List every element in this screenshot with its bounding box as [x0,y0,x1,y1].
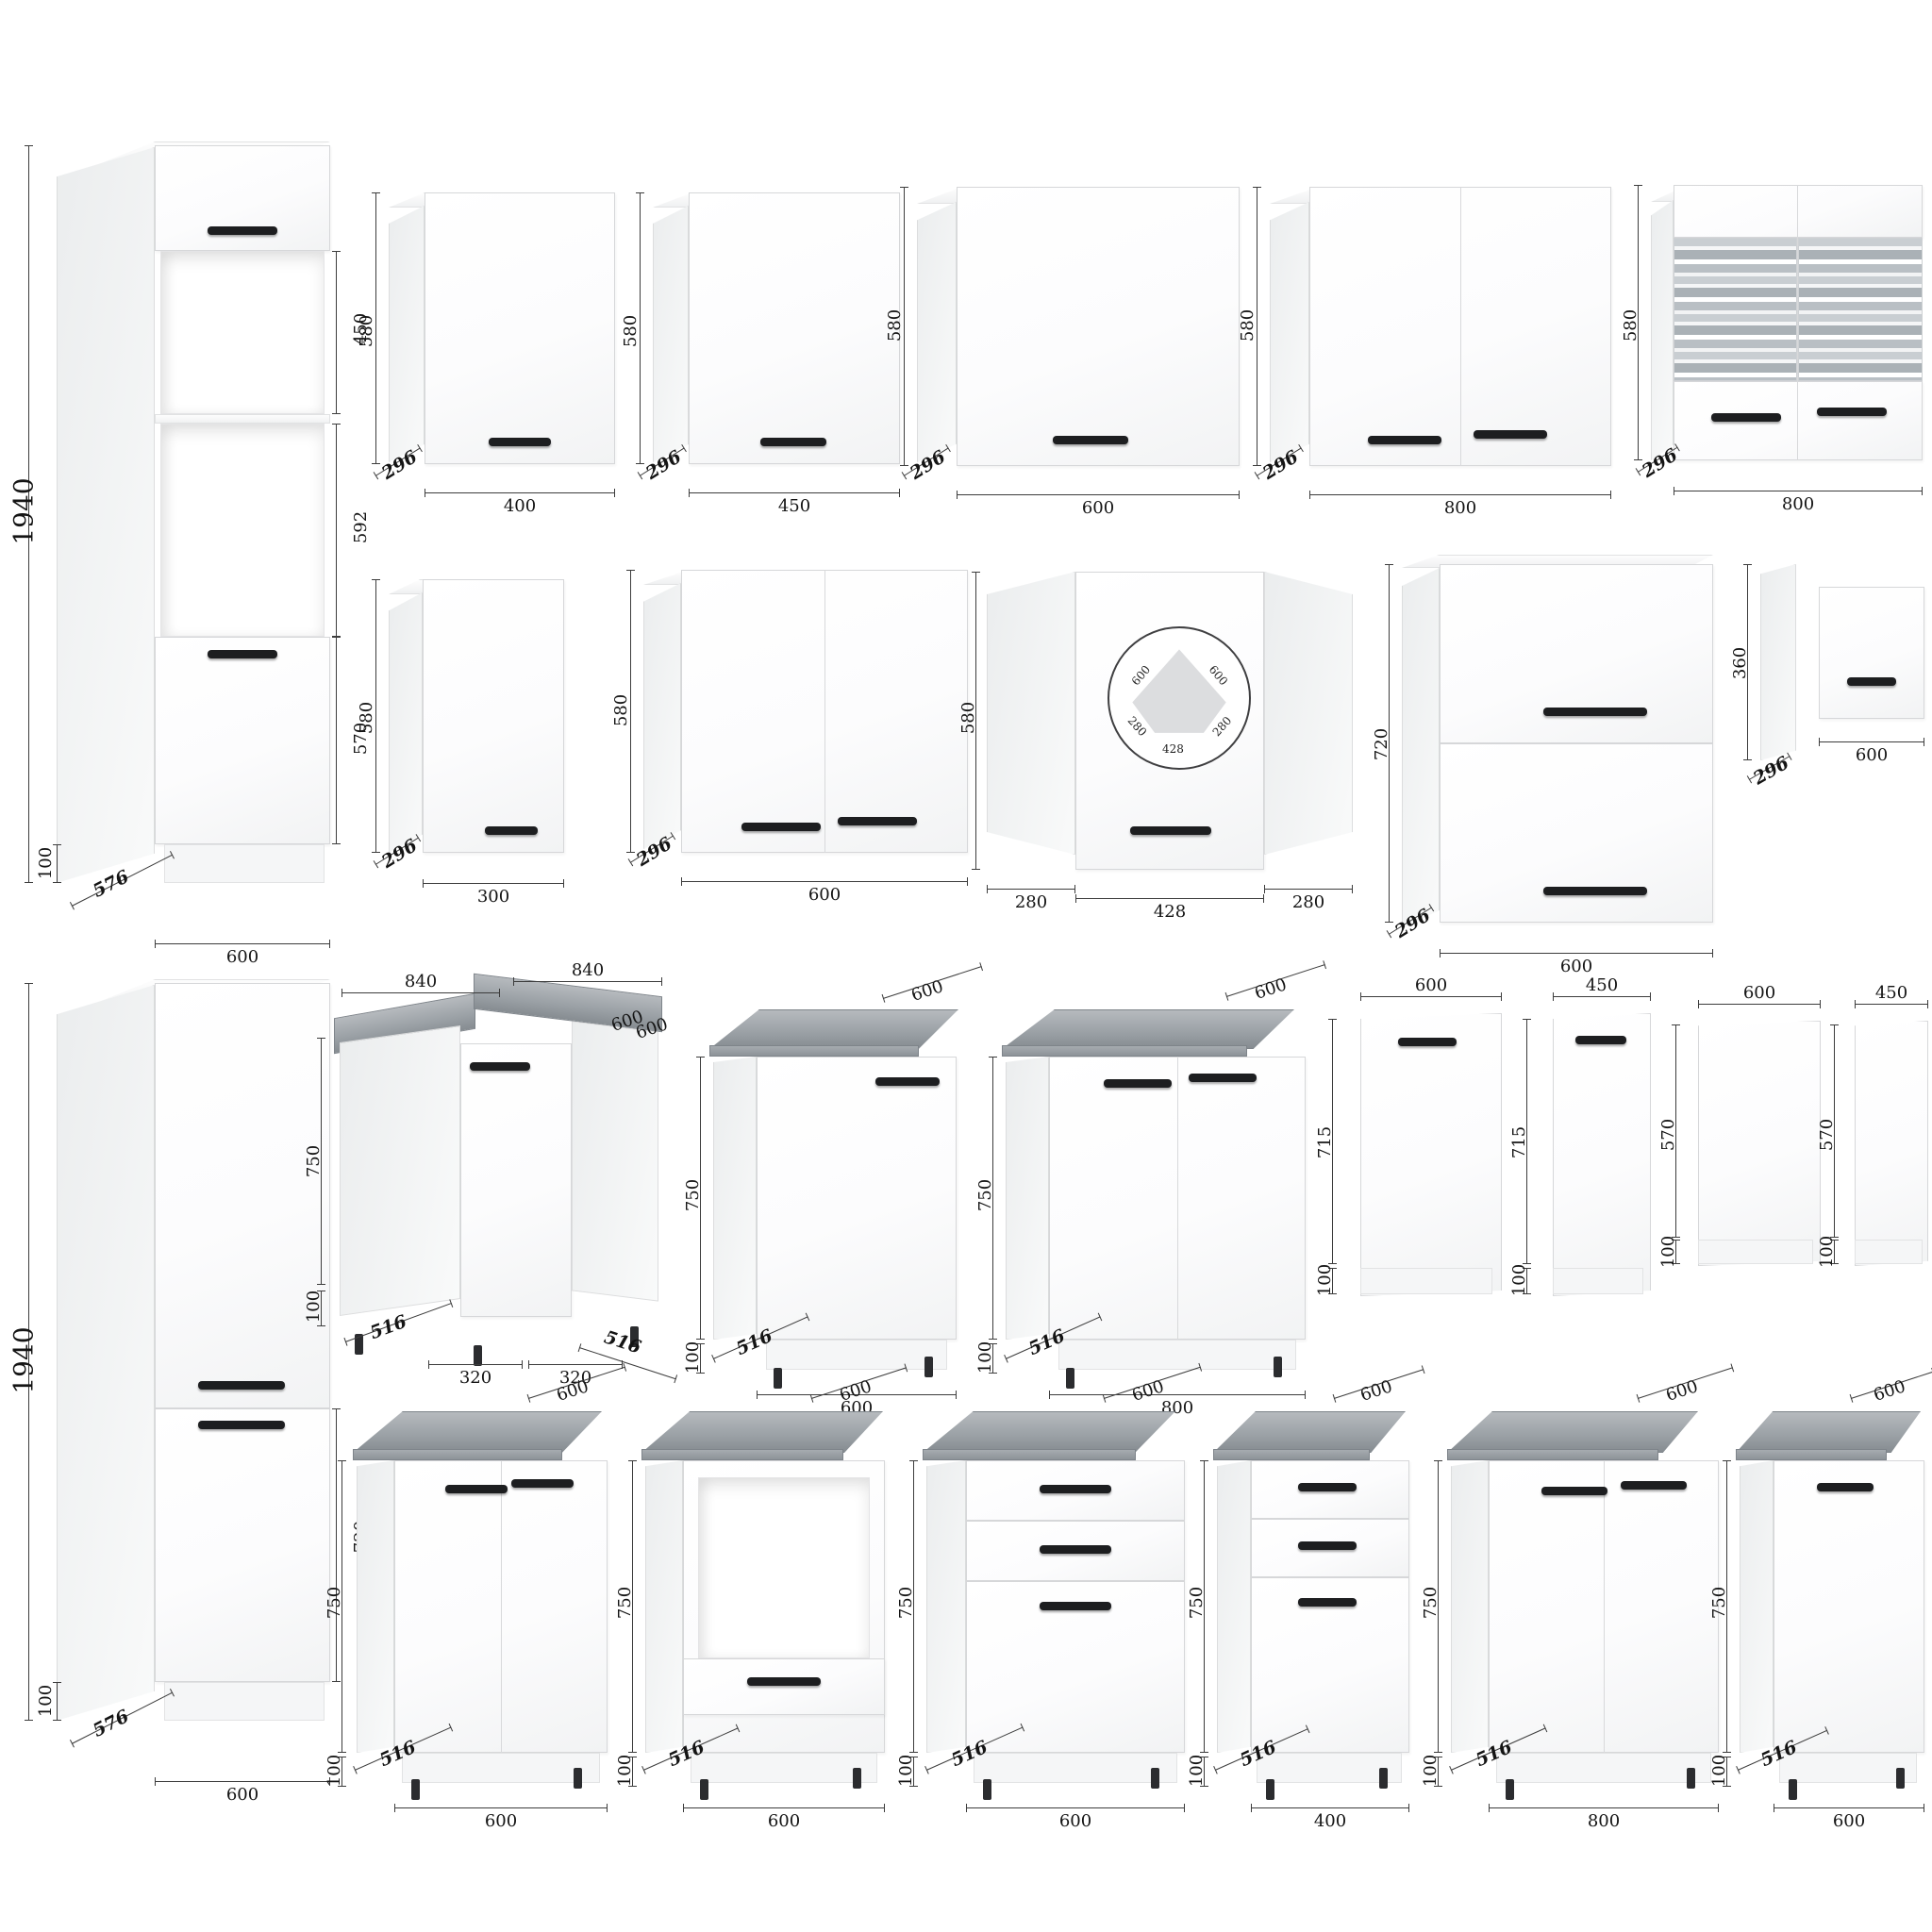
dim-label-side: 280 [987,894,1075,911]
dim-label-height: 750 [685,1179,702,1211]
cabinet-side-face [1402,568,1440,928]
oven-niche-upper [160,251,325,414]
dim-label-height: 750 [326,1587,343,1619]
dim-line [681,881,968,882]
dim-label-width: 600 [1360,977,1502,994]
cabinet-side-face [389,592,423,853]
dim-label-plinth: 100 [685,1341,702,1374]
dim-label-height: 580 [887,309,904,341]
door-handle [1621,1481,1687,1490]
dim-label-height: 750 [1189,1587,1206,1619]
drawer-handle [747,1677,821,1686]
plinth-step [1855,1240,1923,1264]
cabinet-leg [1066,1368,1074,1389]
dim-label-plinth: 100 [1711,1755,1728,1787]
base-corner-cabinet: 840 840 600 600 750 100 516 320 320 516 [332,972,681,1396]
cabinet-side-face [57,147,155,883]
dim-label-height: 750 [306,1145,323,1177]
dim-line [423,883,564,884]
cabinet-leg [1274,1357,1282,1377]
dim-label-depth: 296 [634,835,675,870]
corner-right-front [572,1021,658,1301]
cover-panel [1855,1021,1928,1266]
cabinet-leg [924,1357,933,1377]
door-handle [1104,1079,1172,1088]
door-handle [445,1485,508,1493]
panel-715x600: 600 715 100 [1328,981,1517,1377]
dim-line [155,1781,330,1782]
glass-doors-top-rail [1674,185,1923,238]
dim-label-height: 750 [898,1587,915,1619]
dim-label-depth: 296 [379,448,421,483]
plinth [164,844,325,883]
door [757,1057,957,1340]
door-split-line [824,570,825,853]
dim-label-height: 715 [1317,1126,1334,1158]
cabinet-side-face [389,206,425,462]
base-cabinet-600-single: 600 750 100 516 600 [698,987,981,1430]
door-handle [1130,826,1211,835]
door-handle [1711,413,1781,422]
wall-cabinet-800: 580 296 800 [1255,175,1623,521]
dim-label-depth: 576 [91,868,132,901]
plinth-step [1698,1240,1813,1264]
door-handle [1189,1074,1257,1082]
cabinet-side-face [917,202,957,462]
cabinet-side-face [713,1057,757,1340]
dim-label-plinth: 100 [1189,1755,1206,1787]
cabinet-leg [774,1368,782,1389]
dim-label-width: 800 [1674,496,1923,513]
dim-line [425,492,615,493]
countertop-edge [923,1449,1136,1460]
dim-line [336,251,337,414]
dim-label-depth: 296 [1640,446,1681,481]
dim-line [336,1408,337,1682]
dim-label-height: 570 [1660,1119,1677,1151]
dim-line [1075,898,1264,899]
base-cabinet-600-double: 600 750 100 516 600 [340,1387,623,1840]
cabinet-side-face [1451,1460,1489,1753]
door-split-line [1177,1057,1178,1340]
dim-label-width: 300 [423,889,564,906]
drawer-handle [1298,1483,1357,1491]
dim-label-width: 600 [394,1813,608,1830]
wall-cabinet-600-double: 580 296 600 [628,558,977,908]
dim-label-height: 1940 [11,477,38,544]
dim-label-height: 750 [617,1587,634,1619]
dim-label-width: 600 [1440,958,1713,975]
cabinet-side-face [653,206,689,462]
dim-label-niche: 592 [353,511,370,543]
countertop [1213,1411,1406,1453]
dim-label-plinth: 100 [1423,1755,1440,1787]
dim-label-depth: 296 [1260,448,1302,483]
dim-label-plinth: 100 [326,1755,343,1787]
dim-line [1440,953,1713,954]
dim-label-width: 600 [1774,1813,1924,1830]
door [423,579,564,853]
dim-line [1674,491,1923,491]
cabinet-leg [1687,1768,1695,1789]
dim-label-depth: 296 [643,448,685,483]
dim-line [1360,996,1502,997]
plinth [1058,1340,1296,1370]
dim-line [428,1364,523,1365]
cabinet-leg [574,1768,582,1789]
flip-door-upper [1440,564,1713,743]
corner-left-panel [987,572,1075,855]
dim-line [957,494,1240,495]
flip-door [1819,587,1924,719]
wall-cabinet-600-720-flip: 720 296 600 [1387,555,1726,998]
dim-line [1855,1004,1928,1005]
wall-glass-cabinet-800: 580 296 800 [1641,175,1932,521]
dim-label-side: 280 [1264,894,1353,911]
cabinet-side-face [57,985,155,1721]
door [1774,1460,1924,1753]
drawer-handle [1298,1598,1357,1607]
dim-label-width: 600 [155,1787,330,1804]
dim-label-height: 750 [977,1179,994,1211]
tall-fridge-housing-cabinet: 1940 100 576 600 720 [23,977,343,1798]
drawer-handle [1040,1545,1111,1554]
door-handle [1817,1483,1874,1491]
glass-doors-bottom-rail [1674,381,1923,460]
dim-label-depth: 296 [1392,907,1434,941]
dim-label-height: 750 [1711,1587,1728,1619]
side-panel [1760,564,1796,760]
wall-corner-cabinet: 600 600 280 280 428 580 280 428 280 [987,547,1392,943]
door-split-line [1797,185,1798,460]
dim-label-top: 840 [341,974,500,991]
dim-label-depth: 296 [1751,754,1792,788]
wall-cabinet-450: 580 296 450 [638,181,902,521]
cover-panel [1360,1013,1502,1296]
door-handle [208,650,277,658]
dim-label-width: 600 [681,887,968,904]
countertop-edge [1447,1449,1658,1460]
plan-dim-label: 428 [1162,743,1184,755]
dim-label-height: 1940 [11,1326,38,1393]
plinth-step [1553,1268,1643,1294]
dim-line [513,981,662,982]
dim-label-top: 840 [513,962,662,979]
door-handle [485,826,538,835]
dim-line [683,1807,885,1808]
countertop [1736,1411,1921,1453]
plinth [974,1753,1177,1783]
cabinet-leg [1789,1779,1797,1800]
cabinet-leg [1151,1768,1159,1789]
dim-label-top-depth: 600 [1872,1378,1907,1405]
wall-cabinet-600: 580 296 600 [902,175,1241,521]
base-cabinet-600-single-b: 600 750 100 516 600 [1726,1387,1932,1840]
dim-label-height: 580 [623,315,640,347]
lower-door [155,1408,330,1682]
dim-label-height: 580 [1240,309,1257,341]
dim-line [336,637,337,844]
base-cabinet-800-double: 600 750 100 516 800 [991,987,1321,1430]
dim-label-width: 600 [683,1813,885,1830]
door-handle [1543,708,1647,716]
dim-label-plinth: 100 [977,1341,994,1374]
flip-door-lower [1440,743,1713,923]
tall-oven-housing-cabinet: 1940 100 576 600 450 592 570 [23,140,343,960]
shelf-edge [155,414,330,424]
top-door [155,145,330,251]
dim-line [57,844,58,883]
dim-label-plinth: 100 [306,1291,323,1323]
dim-label-width: 600 [1698,985,1821,1002]
dim-label-width: 800 [1489,1813,1719,1830]
drawer-handle [1298,1541,1357,1550]
cabinet-leg [1506,1779,1514,1800]
dim-label-bottom: 320 [428,1370,523,1387]
dim-label-plinth: 100 [898,1755,915,1787]
dim-label-plinth: 100 [1660,1236,1677,1268]
cabinet-leg [1896,1768,1905,1789]
door-handle [1053,436,1128,444]
dim-label-height: 570 [1819,1119,1836,1151]
dim-label-height: 715 [1511,1126,1528,1158]
dim-label-top-depth: 600 [1253,976,1289,1003]
plinth [1496,1753,1711,1783]
upper-door [155,983,330,1408]
cabinet-leg [700,1779,708,1800]
dim-line [1774,1807,1924,1808]
bottom-drawer [683,1658,885,1715]
cabinet-side-face [1217,1460,1251,1753]
dim-label-plinth: 100 [38,847,55,879]
panel-570x600: 600 570 100 [1674,992,1824,1370]
panel-handle [1398,1038,1457,1046]
oven-niche [698,1477,870,1658]
countertop [353,1411,602,1453]
cabinet-side-face [926,1460,966,1753]
door [425,192,615,464]
door-handle [1474,430,1547,439]
dim-label-width: 450 [689,498,900,515]
countertop-edge [1213,1449,1370,1460]
door-handle [208,226,277,235]
dim-label-depth: 516 [368,1313,409,1342]
dim-label-plinth: 100 [617,1755,634,1787]
countertop-edge [353,1449,562,1460]
dim-line [987,889,1075,890]
dim-label-top-depth: 600 [1664,1378,1700,1405]
base-oven-cabinet-600: 600 750 100 516 600 [630,1387,904,1840]
door-handle [1541,1487,1607,1495]
glass-panel-right [1798,238,1923,381]
cabinet-side-face [643,583,681,849]
countertop-edge [1002,1045,1247,1057]
dim-label-height: 360 [1732,647,1749,679]
base-drawer-cabinet-600: 600 750 100 516 600 [911,1387,1194,1840]
door-handle [741,823,821,831]
countertop [641,1411,883,1453]
door-handle [875,1077,940,1086]
dim-line [394,1807,608,1808]
door [957,187,1240,466]
bottom-door [155,637,330,844]
door-handle [838,817,917,825]
countertop [709,1009,958,1049]
dim-label-depth: 296 [379,837,421,872]
dim-label-height: 580 [960,702,977,734]
base-drawer-cabinet-400: 600 750 100 516 400 [1202,1387,1428,1840]
glass-panel-left [1674,238,1797,381]
countertop-edge [641,1449,843,1460]
dim-label-width: 450 [1553,977,1651,994]
cabinet-leg [411,1779,420,1800]
dim-label-height: 580 [1623,309,1640,341]
dim-line [1251,1807,1409,1808]
door-handle [1040,1602,1111,1610]
dim-label-height: 580 [358,702,375,734]
dim-label-width: 600 [966,1813,1185,1830]
plinth [402,1753,600,1783]
cabinet-catalog-canvas: 1940 100 576 600 450 592 570 580 296 400… [0,0,1932,1932]
cabinet-leg [983,1779,991,1800]
dim-line [57,1682,58,1721]
oven-niche-lower [160,424,325,637]
cabinet-side-face [1270,202,1309,462]
dim-label-depth: 296 [908,448,949,483]
countertop [923,1411,1175,1453]
door-handle [1368,436,1441,444]
dim-label-top-depth: 600 [1358,1378,1394,1405]
dim-label-depth: 576 [91,1707,132,1740]
panel-715x450: 450 715 100 [1524,981,1666,1377]
cabinet-side-face [645,1460,683,1753]
plinth-step [1360,1268,1492,1294]
dim-label-width: 600 [957,500,1240,517]
base-cabinet-800-double-b: 600 750 100 516 800 [1436,1387,1719,1840]
corner-door [460,1043,572,1317]
cover-panel [1698,1021,1821,1266]
door-split-line [1604,1460,1605,1753]
cabinet-side-face [357,1460,394,1753]
cabinet-side-face [1740,1460,1774,1753]
plinth [691,1753,877,1783]
dim-label-height: 720 [1374,728,1391,760]
cover-panel [1553,1013,1651,1296]
dim-label-front: 428 [1075,904,1264,921]
wall-cabinet-600-360-flip: 600 [1815,581,1932,808]
corner-left-front [340,1025,460,1316]
wall-cabinet-400: 580 296 400 [374,181,619,521]
countertop-edge [1736,1449,1887,1460]
dim-label-width: 600 [1819,747,1924,764]
door-handle [1847,677,1896,686]
dim-line [1819,741,1924,742]
panel-handle [1575,1036,1626,1044]
dim-label-height: 580 [358,315,375,347]
dim-line [1553,996,1651,997]
door-handle [1543,887,1647,895]
door-split-line [501,1460,502,1753]
dim-label-plinth: 100 [1317,1264,1334,1296]
dim-label-width: 400 [425,498,615,515]
dim-line [966,1807,1185,1808]
dim-label-plinth: 100 [1819,1236,1836,1268]
dim-label-plinth: 100 [38,1685,55,1717]
cabinet-side-face [1651,200,1674,460]
cabinet-leg [1266,1779,1274,1800]
countertop-edge [709,1045,919,1057]
door-handle [760,438,826,446]
corner-right-panel [1264,572,1353,855]
dim-line [341,992,500,993]
dim-label-width: 450 [1855,985,1928,1002]
dim-line [1264,889,1353,890]
cabinet-side-face [1006,1057,1049,1340]
dim-label-width: 600 [155,949,330,966]
dim-line [336,424,337,637]
dim-label-height: 750 [1423,1587,1440,1619]
door-split-line [1460,187,1461,466]
plinth [164,1682,325,1721]
dim-line [1489,1807,1719,1808]
door-handle [489,438,551,446]
door-handle [198,1381,285,1390]
door [689,192,900,464]
dim-label-width: 400 [1251,1813,1409,1830]
door-handle [1817,408,1887,416]
door-handle [470,1062,530,1071]
cabinet-leg [1379,1768,1388,1789]
panel-570x450: 450 570 100 [1832,992,1932,1370]
wall-cabinet-300: 580 296 300 [374,566,619,906]
cabinet-leg [853,1768,861,1789]
wall-cabinet-360-side-view: 360 296 [1747,564,1804,809]
dim-label-plinth: 100 [1511,1264,1528,1296]
dim-line [1309,494,1611,495]
cabinet-leg [474,1345,482,1366]
dim-line [155,943,330,944]
door-handle [198,1421,285,1429]
countertop [1002,1009,1294,1049]
door-handle [511,1479,574,1488]
dim-label-height: 580 [613,694,630,726]
dim-label-top-depth: 600 [909,978,945,1005]
dim-line [1698,1004,1821,1005]
drawer-handle [1040,1485,1111,1493]
plinth [766,1340,947,1370]
dim-label-width: 800 [1309,500,1611,517]
dim-line [689,492,900,493]
countertop [1447,1411,1698,1453]
dim-line [528,1364,623,1365]
